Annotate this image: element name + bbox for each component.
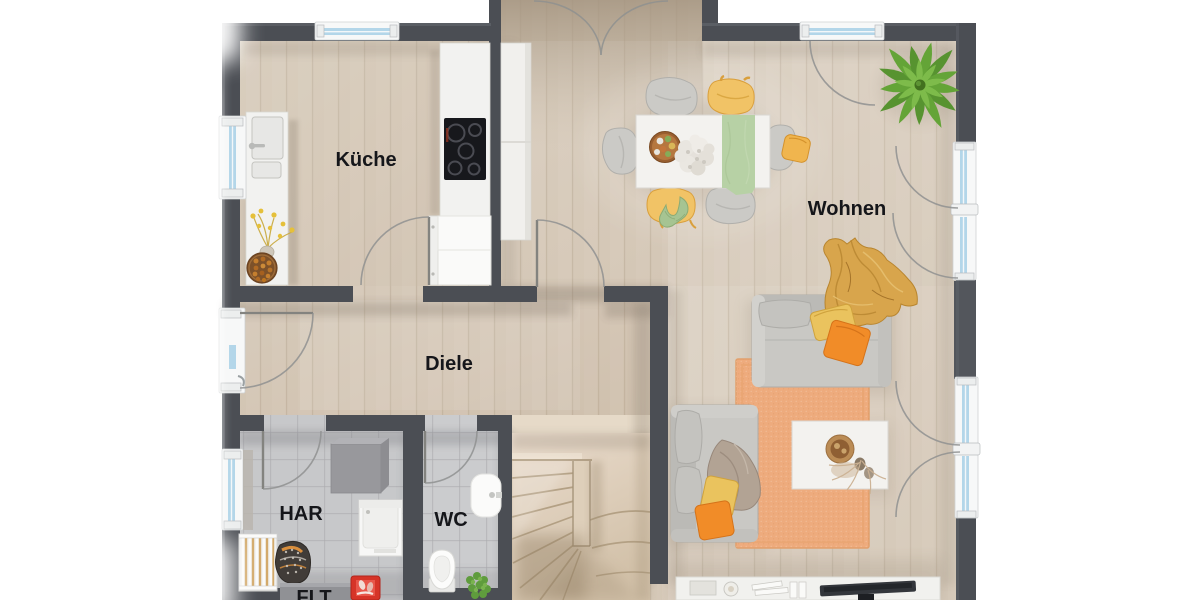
svg-text:Wohnen: Wohnen — [808, 198, 887, 220]
svg-text:FLT: FLT — [296, 587, 331, 600]
svg-text:Küche: Küche — [335, 149, 396, 171]
svg-text:Diele: Diele — [425, 353, 473, 375]
svg-text:HAR: HAR — [279, 503, 323, 525]
svg-text:WC: WC — [434, 509, 467, 531]
